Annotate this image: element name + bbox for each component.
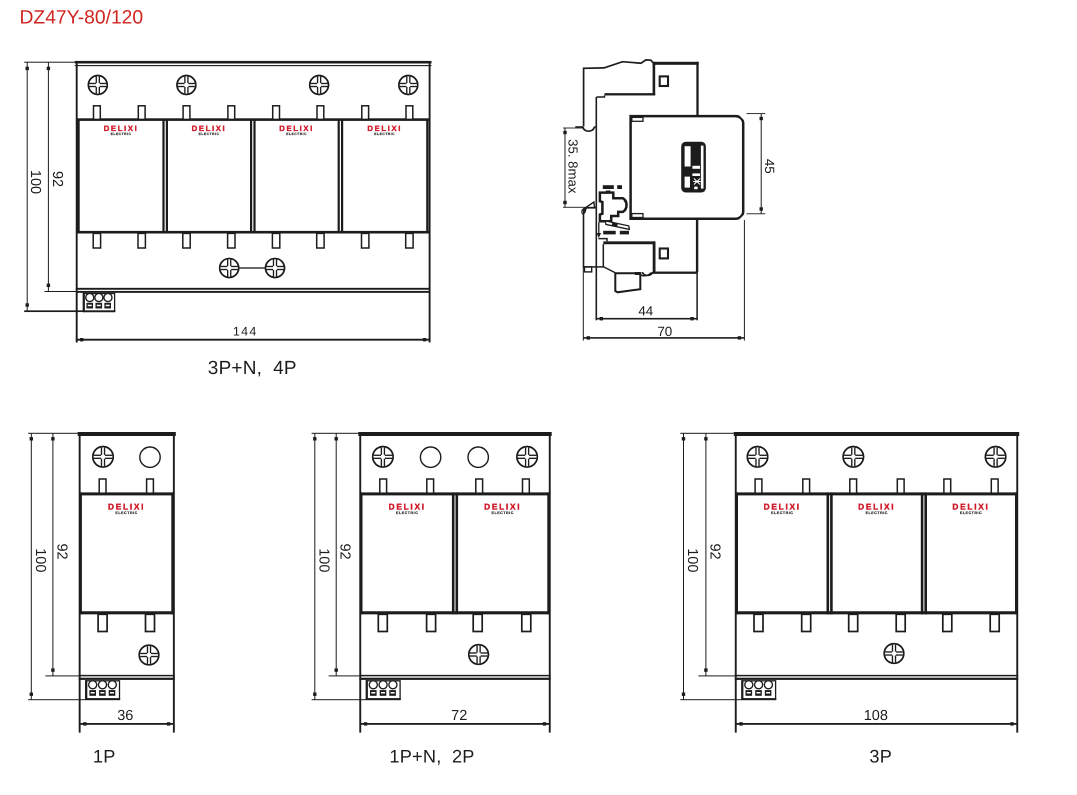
svg-text:3P: 3P (869, 746, 892, 766)
svg-text:92: 92 (337, 543, 353, 559)
svg-text:100: 100 (684, 548, 700, 572)
svg-text:70: 70 (657, 324, 672, 339)
svg-text:1P+N, 2P: 1P+N, 2P (389, 746, 474, 766)
svg-text:ELECTRIC: ELECTRIC (396, 511, 418, 515)
svg-text:DELIXI: DELIXI (108, 502, 145, 512)
svg-text:DELIXI: DELIXI (279, 123, 314, 132)
svg-text:ELECTRIC: ELECTRIC (771, 511, 793, 515)
svg-text:35. 8max: 35. 8max (565, 139, 580, 194)
svg-text:ELECTRIC: ELECTRIC (286, 132, 307, 136)
svg-text:ELECTRIC: ELECTRIC (115, 511, 137, 515)
svg-text:ELECTRIC: ELECTRIC (492, 511, 514, 515)
svg-text:1P: 1P (93, 746, 116, 766)
svg-text:ELECTRIC: ELECTRIC (199, 132, 220, 136)
svg-text:100: 100 (27, 170, 43, 194)
svg-text:DELIXI: DELIXI (764, 502, 801, 512)
svg-text:ELECTRIC: ELECTRIC (866, 511, 888, 515)
svg-text:DELIXI: DELIXI (858, 502, 895, 512)
svg-text:100: 100 (315, 548, 331, 572)
svg-text:92: 92 (53, 543, 69, 559)
svg-text:DELIXI: DELIXI (389, 502, 426, 512)
svg-text:108: 108 (864, 708, 888, 724)
svg-text:36: 36 (117, 708, 133, 724)
svg-text:ELECTRIC: ELECTRIC (111, 132, 132, 136)
svg-text:ELECTRIC: ELECTRIC (374, 132, 395, 136)
svg-text:72: 72 (451, 708, 467, 724)
svg-text:DELIXI: DELIXI (367, 123, 402, 132)
svg-text:144: 144 (233, 324, 258, 338)
svg-text:3P+N, 4P: 3P+N, 4P (208, 358, 297, 379)
svg-text:44: 44 (638, 304, 653, 319)
svg-text:100: 100 (32, 548, 48, 572)
svg-text:DZ47Y-80/120: DZ47Y-80/120 (20, 8, 144, 29)
svg-text:DELIXI: DELIXI (104, 123, 139, 132)
svg-text:45: 45 (762, 159, 777, 174)
svg-text:DELIXI: DELIXI (484, 502, 521, 512)
svg-text:ELECTRIC: ELECTRIC (960, 511, 982, 515)
svg-text:DELIXI: DELIXI (952, 502, 989, 512)
svg-text:92: 92 (49, 171, 65, 187)
svg-text:DELIXI: DELIXI (192, 123, 227, 132)
svg-text:92: 92 (706, 543, 722, 559)
